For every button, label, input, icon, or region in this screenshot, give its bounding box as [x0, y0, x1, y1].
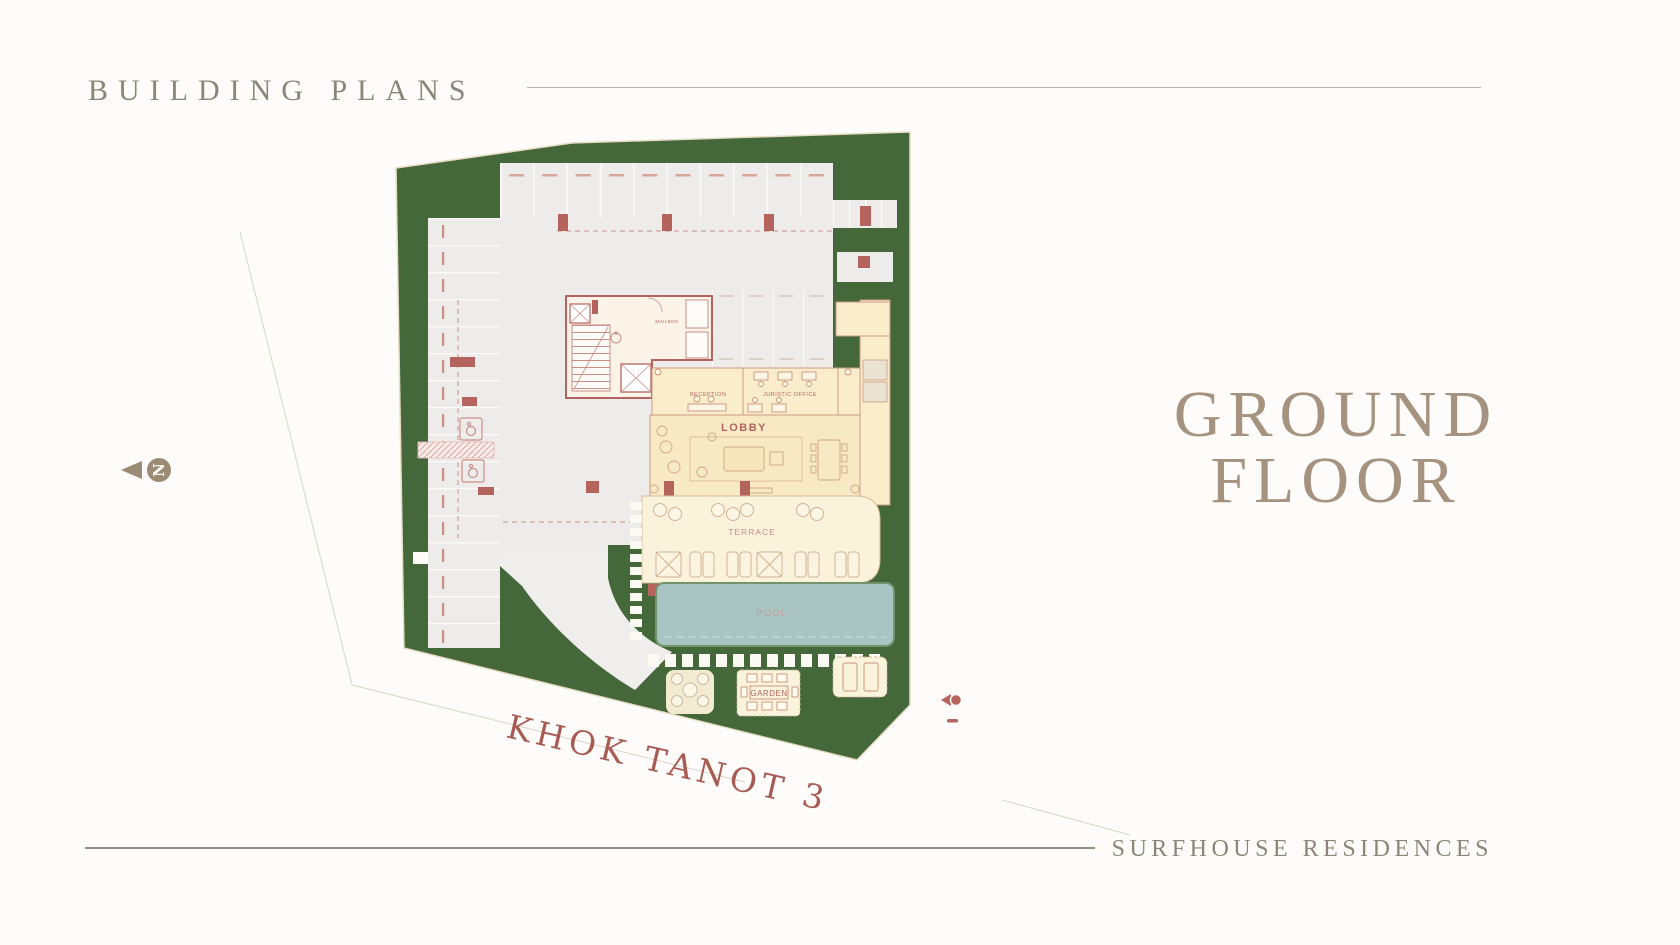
pedestrian-crossing-hatch: [418, 442, 494, 458]
lobby-label: LOBBY: [721, 422, 767, 434]
building-plans-slide: BUILDING PLANS: [0, 0, 1680, 945]
floor-title-line1: GROUND: [1150, 382, 1522, 448]
stairs-icon: [572, 325, 610, 391]
elevator-icon: [570, 304, 590, 323]
floor-title: GROUND FLOOR: [1150, 382, 1522, 514]
reception-label: RECEPTION: [690, 392, 727, 398]
compass-letter: N: [150, 463, 168, 477]
north-arrow-icon: N: [121, 457, 172, 483]
pool-area: POOL: [656, 583, 894, 646]
brand-text: SURFHOUSE RESIDENCES: [1112, 836, 1493, 863]
juristic-office-label: JURISTIC OFFICE: [763, 392, 817, 398]
elevator2-icon: [621, 364, 651, 392]
terrace-label: TERRACE: [728, 527, 776, 537]
mailbox-label: MAILBOX: [655, 319, 678, 324]
terrace-area: TERRACE: [642, 496, 880, 583]
garden-label: GARDEN: [750, 689, 787, 698]
mini-north-arrow-icon: [941, 694, 962, 723]
floor-title-line2: FLOOR: [1150, 448, 1522, 514]
pool-label: POOL: [756, 608, 787, 618]
footer-rule: [85, 847, 1095, 849]
